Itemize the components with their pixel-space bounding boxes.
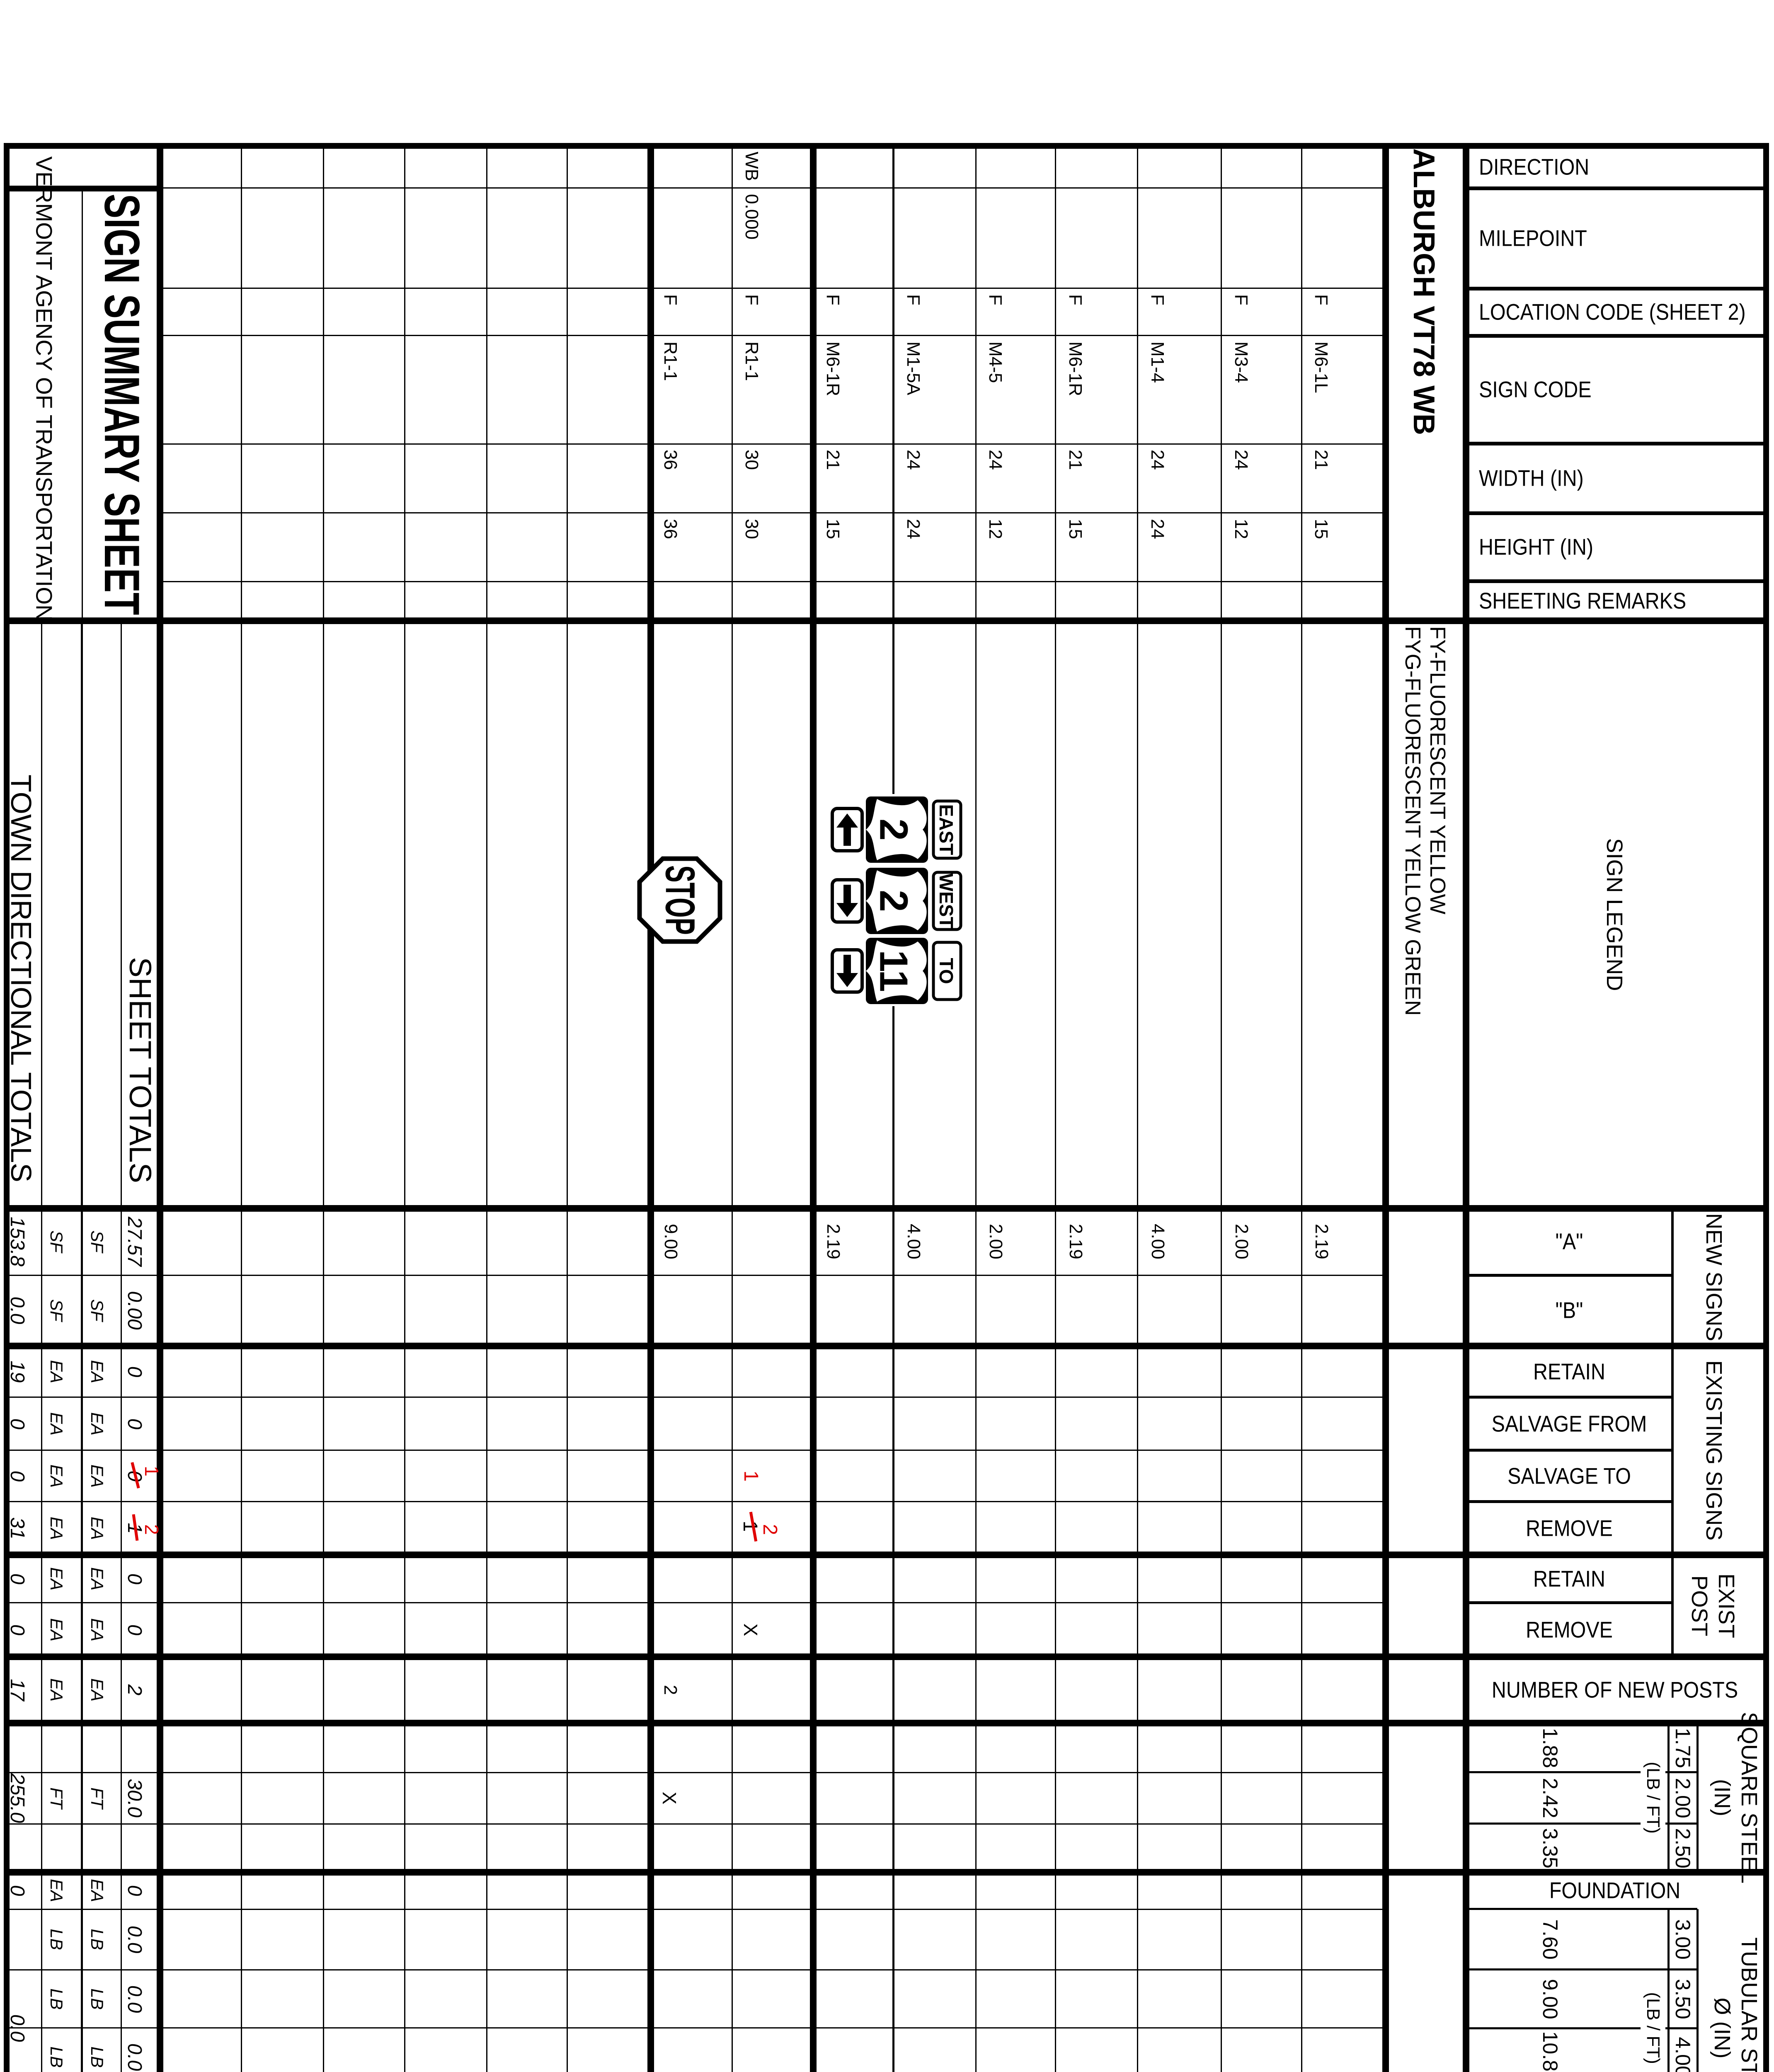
svg-text:STOP: STOP — [657, 865, 703, 935]
svg-text:2: 2 — [872, 890, 916, 912]
svg-text:11: 11 — [872, 950, 916, 992]
svg-text:EAST: EAST — [935, 804, 957, 855]
svg-text:2: 2 — [872, 818, 916, 840]
svg-text:WEST: WEST — [935, 874, 957, 929]
svg-text:TO: TO — [935, 958, 957, 984]
